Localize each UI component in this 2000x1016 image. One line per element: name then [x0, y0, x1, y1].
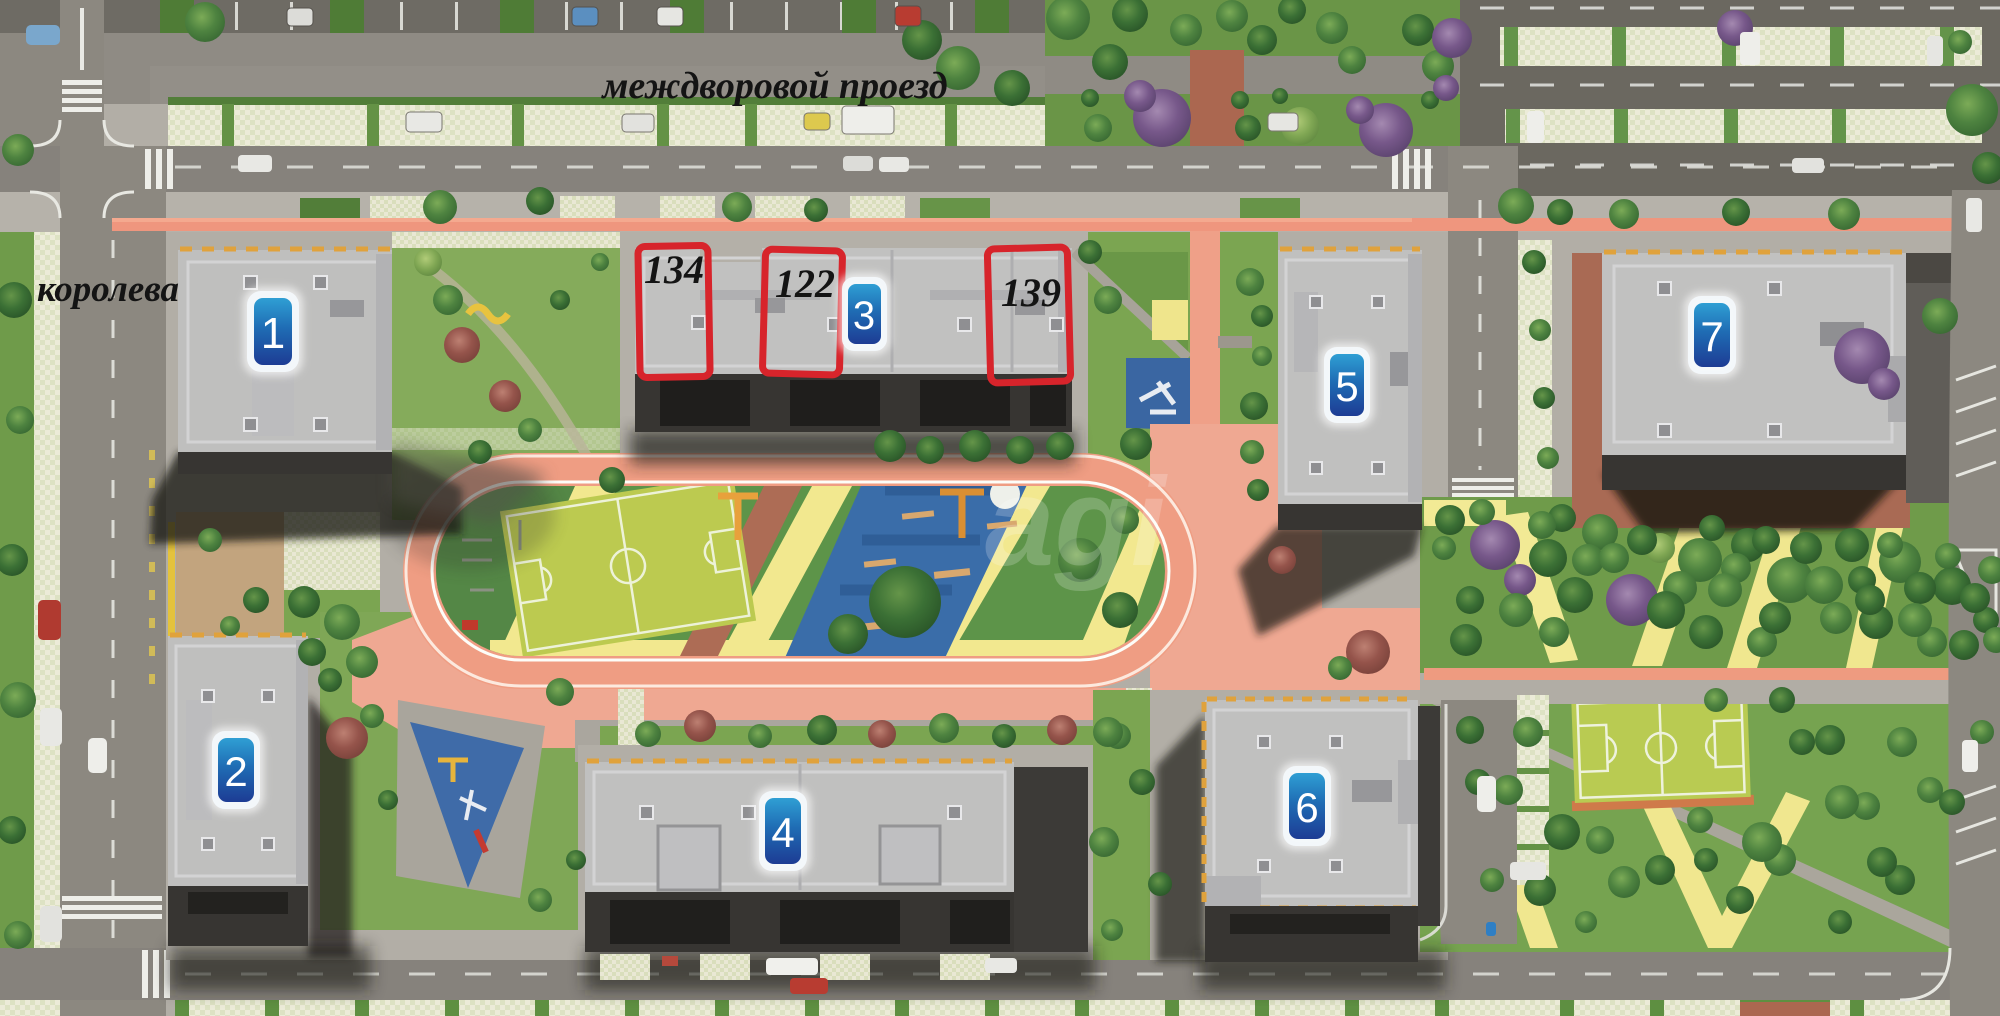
svg-text:4: 4: [771, 809, 794, 856]
svg-text:1: 1: [261, 309, 285, 358]
svg-text:междворовой проезд: междворовой проезд: [600, 65, 947, 107]
svg-text:agi: agi: [985, 453, 1168, 592]
svg-text:7: 7: [1700, 313, 1723, 360]
svg-text:134: 134: [644, 247, 704, 292]
svg-text:6: 6: [1295, 784, 1318, 831]
svg-text:5: 5: [1335, 363, 1358, 410]
svg-text:королева: королева: [37, 269, 179, 310]
svg-text:139: 139: [1001, 270, 1061, 315]
svg-text:3: 3: [853, 294, 875, 338]
svg-text:2: 2: [224, 748, 247, 795]
svg-text:122: 122: [775, 261, 835, 306]
